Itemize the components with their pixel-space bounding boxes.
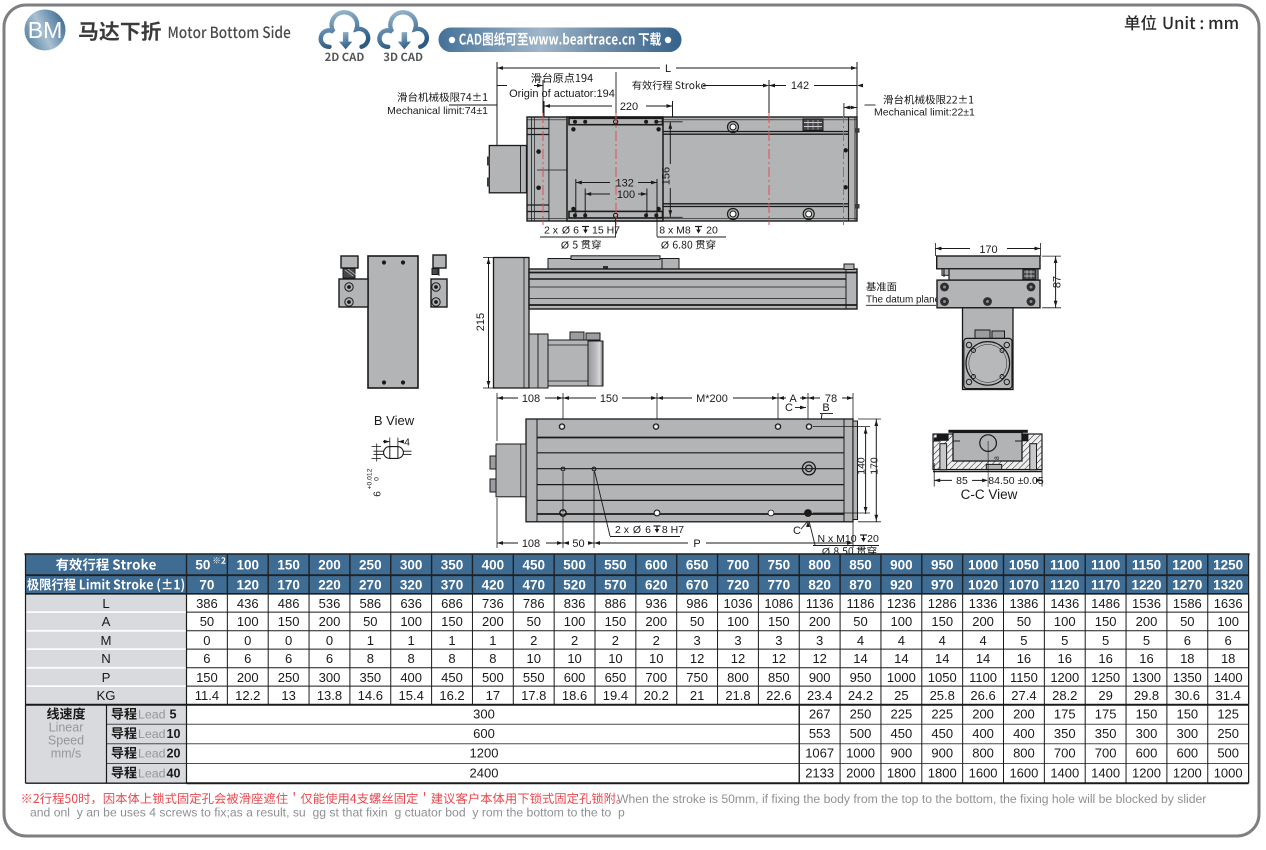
svg-text:1250: 1250 — [1213, 557, 1243, 572]
svg-text:700: 700 — [1095, 746, 1117, 761]
svg-text:KG: KG — [96, 688, 115, 703]
svg-text:3: 3 — [816, 633, 823, 648]
svg-text:1300: 1300 — [1132, 670, 1161, 685]
svg-text:40: 40 — [167, 766, 181, 780]
svg-text:400: 400 — [482, 557, 505, 572]
svg-text:0: 0 — [203, 633, 210, 648]
svg-text:4: 4 — [979, 633, 986, 648]
svg-text:6: 6 — [573, 225, 579, 237]
svg-text:200: 200 — [1013, 707, 1035, 722]
svg-text:1200: 1200 — [1173, 765, 1202, 780]
svg-text:150: 150 — [1176, 707, 1198, 722]
svg-text:200: 200 — [809, 614, 831, 629]
svg-text:100: 100 — [891, 614, 913, 629]
svg-text:Speed: Speed — [48, 734, 84, 748]
svg-text:16: 16 — [1058, 651, 1072, 666]
svg-text:Lead: Lead — [138, 727, 166, 741]
svg-text:50: 50 — [1180, 614, 1194, 629]
svg-text:320: 320 — [400, 577, 423, 592]
svg-text:1286: 1286 — [928, 596, 957, 611]
svg-text:420: 420 — [482, 577, 505, 592]
svg-text:150: 150 — [278, 614, 300, 629]
svg-text:1600: 1600 — [1009, 765, 1038, 780]
svg-text:1200: 1200 — [1132, 765, 1161, 780]
svg-text:1400: 1400 — [1214, 670, 1243, 685]
svg-text:250: 250 — [1217, 726, 1239, 741]
svg-text:450: 450 — [891, 726, 913, 741]
svg-text:C-C View: C-C View — [961, 487, 1018, 502]
svg-text:8: 8 — [448, 651, 455, 666]
svg-text:850: 850 — [768, 670, 790, 685]
svg-text:2133: 2133 — [805, 765, 834, 780]
svg-text:12: 12 — [772, 651, 786, 666]
svg-text:436: 436 — [237, 596, 259, 611]
svg-text:8: 8 — [489, 651, 496, 666]
svg-text:8 H7: 8 H7 — [662, 524, 684, 536]
svg-text:750: 750 — [686, 670, 708, 685]
svg-text:4: 4 — [404, 437, 410, 449]
svg-text:1600: 1600 — [969, 765, 998, 780]
svg-text:and onl y an be uses 4 screws: and onl y an be uses 4 screws to fix;as … — [30, 806, 625, 820]
svg-text:1400: 1400 — [1091, 765, 1120, 780]
svg-text:10: 10 — [567, 651, 581, 666]
svg-text:450: 450 — [522, 557, 545, 572]
svg-text:100: 100 — [400, 614, 422, 629]
svg-text:225: 225 — [891, 707, 913, 722]
svg-text:175: 175 — [1095, 707, 1117, 722]
svg-text:1070: 1070 — [1009, 577, 1039, 592]
svg-text:1486: 1486 — [1091, 596, 1120, 611]
svg-text:1050: 1050 — [928, 670, 957, 685]
svg-text:350: 350 — [1054, 726, 1076, 741]
svg-text:1186: 1186 — [847, 596, 875, 611]
svg-text:2 x: 2 x — [544, 225, 559, 237]
svg-text:1100: 1100 — [969, 670, 997, 685]
svg-text:12: 12 — [690, 651, 704, 666]
svg-text:17: 17 — [486, 688, 500, 703]
svg-text:108: 108 — [522, 538, 540, 550]
svg-text:100: 100 — [237, 557, 260, 572]
svg-text:250: 250 — [278, 670, 300, 685]
svg-text:12: 12 — [731, 651, 745, 666]
svg-text:600: 600 — [473, 726, 495, 741]
svg-text:100: 100 — [564, 614, 586, 629]
svg-text:5: 5 — [1061, 633, 1068, 648]
svg-text:1236: 1236 — [887, 596, 916, 611]
svg-text:Mechanical limit:22±1: Mechanical limit:22±1 — [874, 107, 975, 119]
svg-text:300: 300 — [319, 670, 341, 685]
svg-text:1250: 1250 — [1091, 670, 1120, 685]
svg-text:8: 8 — [994, 456, 1001, 460]
svg-text:936: 936 — [645, 596, 667, 611]
svg-text:10: 10 — [526, 651, 540, 666]
svg-text:1100: 1100 — [1091, 557, 1120, 572]
svg-text:1020: 1020 — [968, 577, 998, 592]
svg-text:21: 21 — [690, 688, 704, 703]
svg-text:31.4: 31.4 — [1216, 688, 1241, 703]
svg-text:0: 0 — [374, 477, 381, 481]
svg-text:200: 200 — [645, 614, 667, 629]
svg-text:700: 700 — [1054, 746, 1076, 761]
svg-text:300: 300 — [1176, 726, 1198, 741]
svg-text:2: 2 — [530, 633, 537, 648]
svg-text:4: 4 — [857, 633, 864, 648]
svg-text:50: 50 — [526, 614, 540, 629]
svg-text:700: 700 — [645, 670, 667, 685]
svg-text:18: 18 — [1180, 651, 1194, 666]
svg-text:150: 150 — [600, 393, 618, 405]
svg-text:14: 14 — [853, 651, 867, 666]
svg-text:1220: 1220 — [1131, 577, 1161, 592]
svg-text:140: 140 — [856, 457, 868, 475]
svg-text:The datum plane: The datum plane — [866, 295, 941, 306]
svg-text:1000: 1000 — [887, 670, 916, 685]
svg-text:25.8: 25.8 — [930, 688, 955, 703]
svg-text:14: 14 — [935, 651, 949, 666]
svg-text:6: 6 — [373, 491, 384, 497]
svg-text:0: 0 — [285, 633, 292, 648]
svg-text:2: 2 — [653, 633, 660, 648]
svg-text:14: 14 — [894, 651, 908, 666]
svg-text:50: 50 — [690, 614, 704, 629]
svg-text:536: 536 — [319, 596, 341, 611]
svg-text:50: 50 — [363, 614, 377, 629]
svg-text:200: 200 — [318, 557, 341, 572]
svg-text:1100: 1100 — [1050, 557, 1079, 572]
svg-text:750: 750 — [768, 557, 791, 572]
svg-text:13: 13 — [281, 688, 295, 703]
svg-text:200: 200 — [237, 670, 259, 685]
svg-text:125: 125 — [1217, 707, 1239, 722]
svg-text:553: 553 — [809, 726, 831, 741]
svg-text:18: 18 — [1221, 651, 1235, 666]
svg-text:1270: 1270 — [1172, 577, 1202, 592]
svg-text:900: 900 — [891, 746, 913, 761]
svg-text:+0.012: +0.012 — [367, 468, 374, 489]
svg-text:156: 156 — [661, 167, 673, 185]
svg-text:6: 6 — [645, 524, 651, 536]
svg-text:586: 586 — [359, 596, 381, 611]
svg-text:1800: 1800 — [887, 765, 916, 780]
svg-text:1320: 1320 — [1213, 577, 1243, 592]
svg-text:12: 12 — [812, 651, 826, 666]
svg-text:150: 150 — [1095, 614, 1117, 629]
svg-text:4: 4 — [939, 633, 946, 648]
svg-text:620: 620 — [645, 577, 668, 592]
svg-text:C: C — [785, 402, 793, 414]
svg-text:16.2: 16.2 — [439, 688, 464, 703]
svg-text:50: 50 — [200, 614, 214, 629]
svg-text:17.8: 17.8 — [521, 688, 546, 703]
svg-text:270: 270 — [359, 577, 382, 592]
svg-text:10: 10 — [608, 651, 622, 666]
svg-text:150: 150 — [277, 557, 300, 572]
svg-text:N: N — [101, 651, 111, 666]
svg-text:85: 85 — [956, 475, 968, 487]
svg-text:650: 650 — [686, 557, 709, 572]
svg-text:200: 200 — [482, 614, 504, 629]
svg-text:220: 220 — [318, 577, 341, 592]
svg-text:1200: 1200 — [470, 746, 499, 761]
svg-text:800: 800 — [727, 670, 749, 685]
svg-text:26.6: 26.6 — [970, 688, 995, 703]
svg-text:L: L — [102, 596, 109, 611]
svg-text:870: 870 — [849, 577, 872, 592]
svg-text:150: 150 — [1136, 707, 1158, 722]
svg-text:950: 950 — [850, 670, 872, 685]
svg-text:3: 3 — [775, 633, 782, 648]
svg-text:2 x: 2 x — [615, 524, 630, 536]
svg-text:3: 3 — [694, 633, 701, 648]
svg-text:1086: 1086 — [764, 596, 793, 611]
svg-text:350: 350 — [359, 670, 381, 685]
svg-text:800: 800 — [1013, 746, 1035, 761]
svg-text:170: 170 — [869, 457, 881, 475]
svg-text:23.4: 23.4 — [807, 688, 832, 703]
svg-text:Mechanical limit:74±1: Mechanical limit:74±1 — [387, 105, 488, 117]
svg-text:20: 20 — [867, 533, 879, 545]
svg-text:5: 5 — [1020, 633, 1027, 648]
svg-text:1: 1 — [448, 633, 455, 648]
svg-text:4: 4 — [898, 633, 905, 648]
svg-text:800: 800 — [808, 557, 831, 572]
svg-text:Lead: Lead — [138, 747, 166, 761]
svg-text:A: A — [102, 614, 111, 629]
svg-text:267: 267 — [809, 707, 831, 722]
svg-text:50: 50 — [195, 557, 210, 572]
svg-text:650: 650 — [605, 670, 627, 685]
svg-text:6: 6 — [285, 651, 292, 666]
svg-text:970: 970 — [931, 577, 954, 592]
svg-text:370: 370 — [441, 577, 464, 592]
svg-text:100: 100 — [237, 614, 259, 629]
svg-text:1436: 1436 — [1050, 596, 1079, 611]
svg-text:350: 350 — [441, 557, 464, 572]
svg-text:800: 800 — [972, 746, 994, 761]
svg-text:1067: 1067 — [805, 746, 834, 761]
svg-text:50: 50 — [853, 614, 867, 629]
svg-text:13.8: 13.8 — [317, 688, 342, 703]
svg-text:14.6: 14.6 — [358, 688, 383, 703]
svg-text:200: 200 — [1136, 614, 1158, 629]
svg-text:Lead: Lead — [138, 766, 166, 780]
svg-text:18.6: 18.6 — [562, 688, 587, 703]
svg-text:450: 450 — [441, 670, 463, 685]
svg-text:150: 150 — [196, 670, 218, 685]
svg-text:1350: 1350 — [1173, 670, 1202, 685]
svg-text:250: 250 — [850, 707, 872, 722]
svg-text:1536: 1536 — [1132, 596, 1161, 611]
svg-text:21.8: 21.8 — [725, 688, 750, 703]
svg-text:When the stroke is 50mm, if fi: When the stroke is 50mm, if fixing the b… — [617, 792, 1206, 806]
svg-text:986: 986 — [686, 596, 708, 611]
svg-text:100: 100 — [1054, 614, 1076, 629]
svg-text:400: 400 — [1013, 726, 1035, 741]
svg-text:120: 120 — [237, 577, 260, 592]
svg-text:15.4: 15.4 — [399, 688, 424, 703]
svg-text:600: 600 — [645, 557, 668, 572]
svg-text:1000: 1000 — [846, 746, 875, 761]
svg-text:1200: 1200 — [1050, 670, 1079, 685]
svg-text:M*200: M*200 — [696, 393, 728, 405]
svg-text:200: 200 — [972, 614, 994, 629]
svg-text:50: 50 — [572, 538, 584, 550]
svg-text:20: 20 — [706, 225, 718, 237]
svg-text:200: 200 — [972, 707, 994, 722]
svg-text:N x M10: N x M10 — [817, 533, 856, 545]
svg-text:19.4: 19.4 — [603, 688, 628, 703]
svg-text:150: 150 — [931, 614, 953, 629]
svg-text:670: 670 — [686, 577, 709, 592]
svg-text:1: 1 — [408, 633, 415, 648]
svg-text:450: 450 — [931, 726, 953, 741]
svg-text:2: 2 — [571, 633, 578, 648]
svg-text:1000: 1000 — [1214, 765, 1243, 780]
svg-text:14: 14 — [976, 651, 990, 666]
svg-text:1000: 1000 — [968, 557, 998, 572]
svg-text:L: L — [665, 63, 671, 75]
svg-text:920: 920 — [890, 577, 913, 592]
svg-text:C: C — [793, 525, 801, 537]
svg-text:300: 300 — [400, 557, 423, 572]
svg-text:215: 215 — [475, 313, 487, 331]
svg-text:Ø: Ø — [633, 524, 641, 536]
svg-text:1: 1 — [367, 633, 374, 648]
svg-text:20: 20 — [167, 747, 181, 761]
svg-text:150: 150 — [441, 614, 463, 629]
svg-text:400: 400 — [972, 726, 994, 741]
svg-text:142: 142 — [791, 80, 809, 92]
svg-text:1386: 1386 — [1009, 596, 1038, 611]
svg-text:132: 132 — [616, 178, 634, 190]
svg-text:500: 500 — [1217, 746, 1239, 761]
svg-text:2400: 2400 — [470, 765, 499, 780]
svg-text:P: P — [693, 538, 700, 550]
svg-text:Origin of actuator:194: Origin of actuator:194 — [509, 88, 615, 100]
svg-text:500: 500 — [850, 726, 872, 741]
svg-text:84.50 ±0.05: 84.50 ±0.05 — [988, 475, 1044, 487]
svg-text:6: 6 — [1225, 633, 1232, 648]
svg-text:170: 170 — [979, 244, 997, 256]
svg-text:550: 550 — [604, 557, 627, 572]
svg-text:350: 350 — [1095, 726, 1117, 741]
svg-text:886: 886 — [605, 596, 627, 611]
svg-text:Ø: Ø — [561, 240, 569, 252]
svg-text:200: 200 — [319, 614, 341, 629]
svg-text:720: 720 — [727, 577, 750, 592]
svg-text:636: 636 — [400, 596, 422, 611]
svg-text:470: 470 — [522, 577, 545, 592]
svg-text:24.2: 24.2 — [848, 688, 873, 703]
svg-text:15 H7: 15 H7 — [592, 225, 620, 237]
svg-text:29.8: 29.8 — [1134, 688, 1159, 703]
svg-text:5: 5 — [170, 708, 177, 722]
svg-text:B View: B View — [374, 413, 415, 428]
svg-text:786: 786 — [523, 596, 545, 611]
svg-text:220: 220 — [620, 101, 638, 113]
svg-text:950: 950 — [931, 557, 954, 572]
svg-text:11.4: 11.4 — [195, 688, 219, 703]
svg-text:600: 600 — [564, 670, 586, 685]
svg-text:520: 520 — [563, 577, 586, 592]
svg-text:100: 100 — [1217, 614, 1239, 629]
svg-text:20.2: 20.2 — [644, 688, 669, 703]
svg-text:100: 100 — [727, 614, 749, 629]
svg-text:28.2: 28.2 — [1052, 688, 1077, 703]
svg-text:1800: 1800 — [928, 765, 957, 780]
svg-text:22.6: 22.6 — [766, 688, 791, 703]
svg-text:1050: 1050 — [1009, 557, 1039, 572]
svg-text:5: 5 — [1143, 633, 1150, 648]
svg-text:10: 10 — [167, 727, 181, 741]
svg-text:6: 6 — [244, 651, 251, 666]
svg-text:170: 170 — [277, 577, 300, 592]
svg-text:836: 836 — [564, 596, 586, 611]
svg-text:87: 87 — [1052, 276, 1064, 288]
svg-text:Ø: Ø — [661, 240, 669, 252]
svg-text:Lead: Lead — [138, 708, 166, 722]
svg-text:10: 10 — [649, 651, 663, 666]
svg-text:1586: 1586 — [1173, 596, 1202, 611]
svg-text:8 x M8: 8 x M8 — [659, 225, 691, 237]
svg-text:0: 0 — [244, 633, 251, 648]
svg-text:1200: 1200 — [1172, 557, 1202, 572]
svg-text:486: 486 — [278, 596, 300, 611]
svg-text:P: P — [102, 670, 111, 685]
svg-text:M: M — [101, 633, 112, 648]
svg-text:550: 550 — [523, 670, 545, 685]
svg-text:225: 225 — [931, 707, 953, 722]
svg-text:30.6: 30.6 — [1175, 688, 1200, 703]
svg-text:570: 570 — [604, 577, 627, 592]
svg-text:12.2: 12.2 — [235, 688, 260, 703]
svg-text:150: 150 — [605, 614, 627, 629]
svg-text:1336: 1336 — [969, 596, 998, 611]
svg-text:3: 3 — [734, 633, 741, 648]
svg-text:16: 16 — [1017, 651, 1031, 666]
svg-text:1: 1 — [489, 633, 496, 648]
svg-text:820: 820 — [808, 577, 831, 592]
svg-text:8: 8 — [408, 651, 415, 666]
svg-text:6: 6 — [1184, 633, 1191, 648]
svg-text:600: 600 — [1136, 746, 1158, 761]
svg-text:5: 5 — [1102, 633, 1109, 648]
svg-text:6: 6 — [326, 651, 333, 666]
svg-text:8: 8 — [367, 651, 374, 666]
svg-text:25: 25 — [894, 688, 908, 703]
svg-text:50: 50 — [1017, 614, 1031, 629]
svg-text:6: 6 — [203, 651, 210, 666]
svg-text:150: 150 — [768, 614, 790, 629]
svg-text:770: 770 — [768, 577, 791, 592]
svg-text:BM: BM — [28, 17, 63, 43]
svg-text:B: B — [822, 402, 829, 414]
svg-text:108: 108 — [522, 393, 540, 405]
svg-text:100: 100 — [617, 189, 635, 201]
svg-text:686: 686 — [441, 596, 463, 611]
svg-text:27.4: 27.4 — [1011, 688, 1036, 703]
svg-text:Linear: Linear — [49, 721, 84, 735]
svg-text:500: 500 — [563, 557, 586, 572]
svg-text:250: 250 — [359, 557, 382, 572]
svg-text:700: 700 — [727, 557, 750, 572]
svg-text:900: 900 — [931, 746, 953, 761]
svg-text:736: 736 — [482, 596, 504, 611]
svg-text:386: 386 — [196, 596, 218, 611]
svg-text:16: 16 — [1139, 651, 1153, 666]
svg-text:2000: 2000 — [846, 765, 875, 780]
svg-text:400: 400 — [400, 670, 422, 685]
